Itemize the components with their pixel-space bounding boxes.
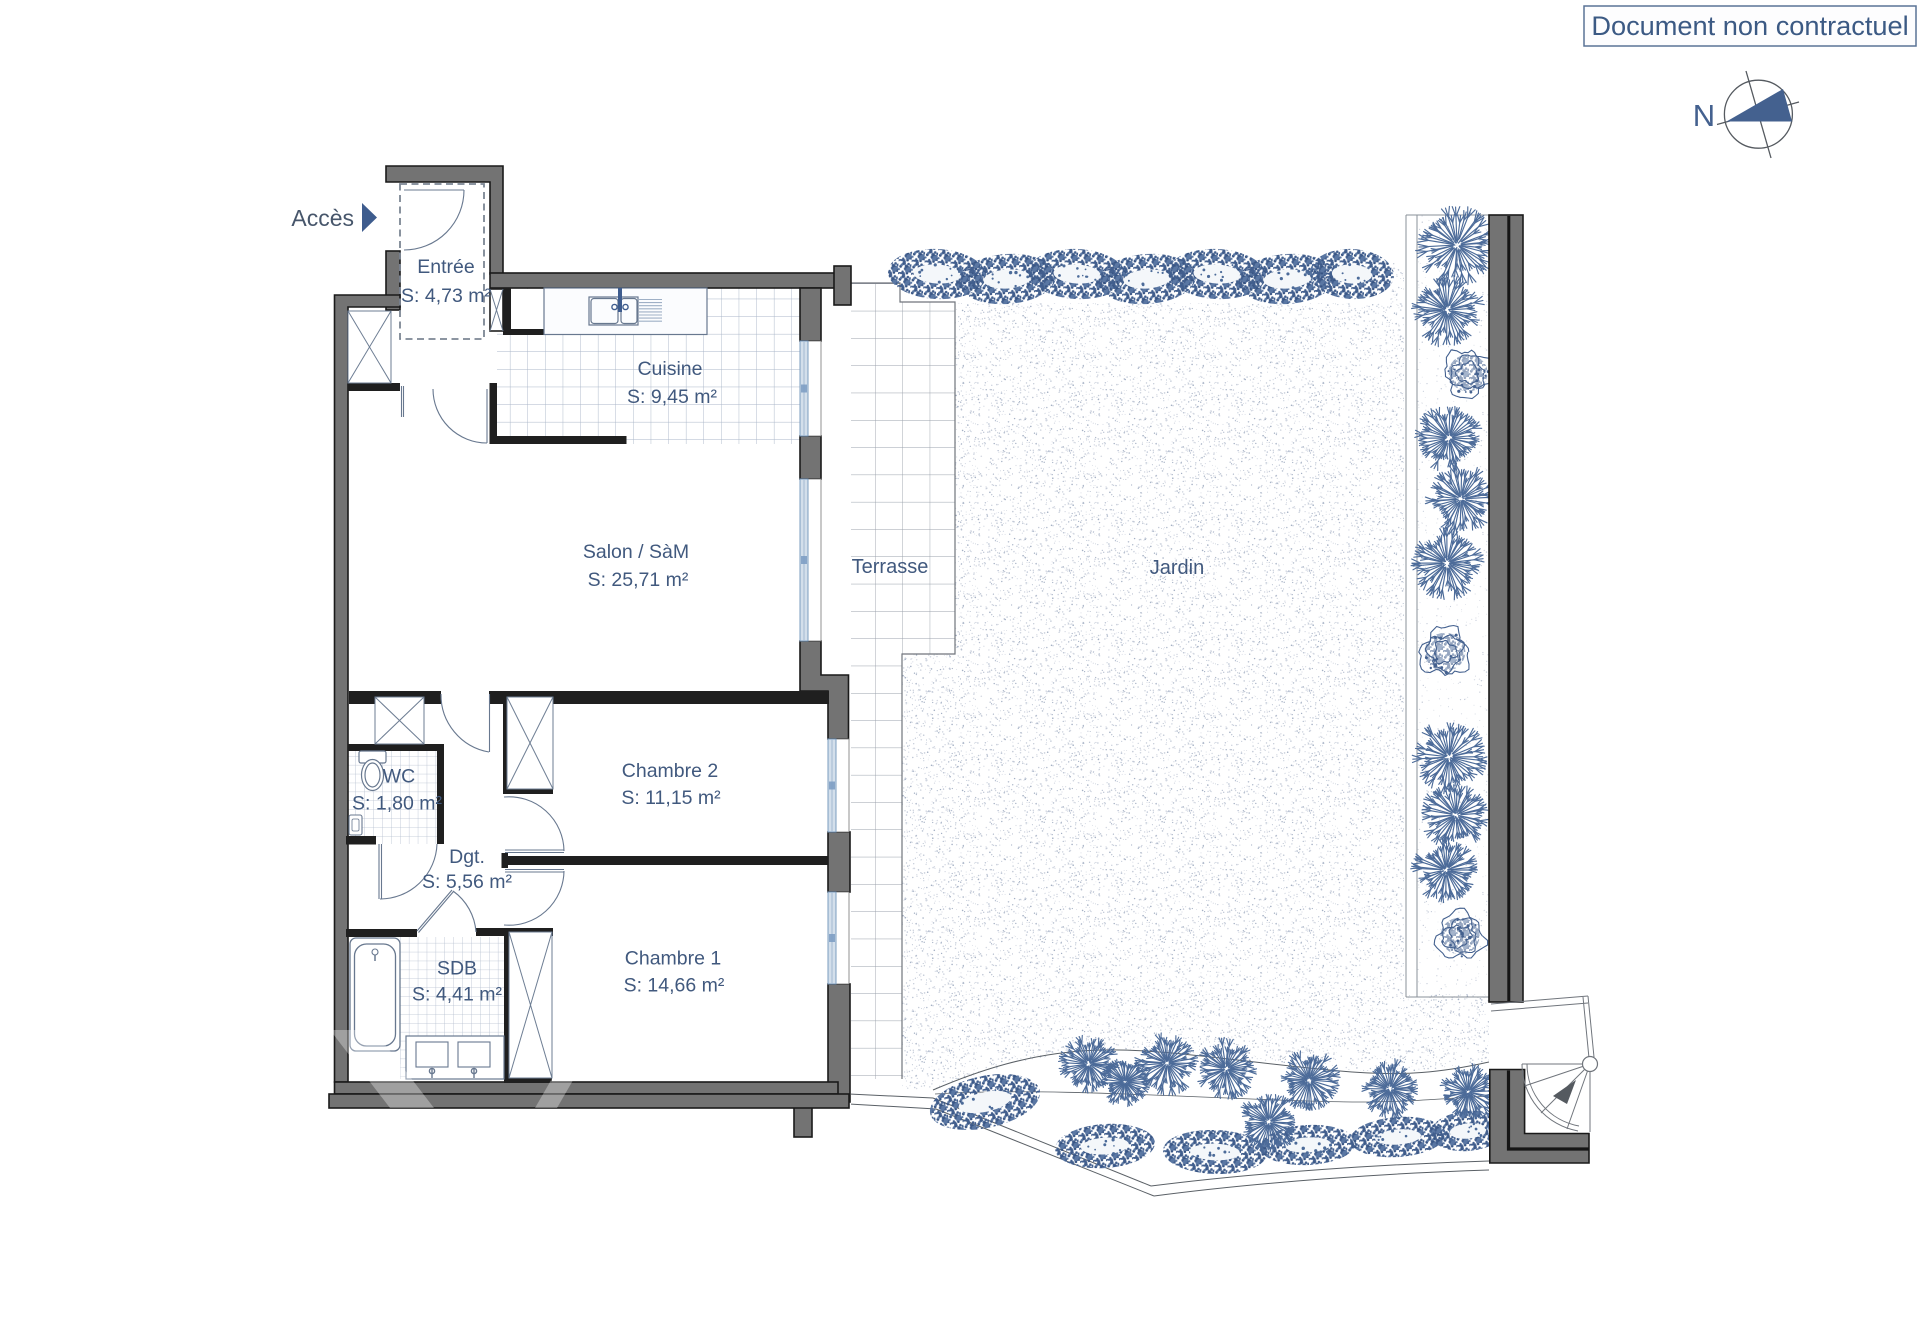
svg-text:SDB: SDB (437, 958, 477, 980)
svg-text:S: 5,56 m²: S: 5,56 m² (422, 871, 512, 893)
svg-text:Chambre 1: Chambre 1 (625, 948, 721, 970)
svg-text:S: 25,71 m²: S: 25,71 m² (588, 569, 689, 591)
svg-text:Jardin: Jardin (1150, 557, 1204, 579)
svg-text:N: N (1693, 98, 1715, 133)
svg-text:Salon / SàM: Salon / SàM (583, 541, 689, 563)
svg-text:WC: WC (383, 766, 416, 788)
svg-text:S: 4,41 m²: S: 4,41 m² (412, 984, 502, 1006)
svg-text:S: 4,73 m²: S: 4,73 m² (401, 285, 491, 307)
svg-text:Terrasse: Terrasse (852, 556, 929, 578)
svg-text:Entrée: Entrée (417, 256, 474, 278)
svg-text:S: 1,80 m²: S: 1,80 m² (352, 793, 442, 815)
svg-text:S: 9,45 m²: S: 9,45 m² (627, 386, 717, 408)
svg-text:Chambre 2: Chambre 2 (622, 760, 718, 782)
svg-text:Dgt.: Dgt. (449, 846, 485, 868)
svg-text:S: 14,66 m²: S: 14,66 m² (624, 975, 725, 997)
svg-text:Document non contractuel: Document non contractuel (1591, 10, 1908, 41)
svg-text:Cuisine: Cuisine (637, 358, 702, 380)
svg-text:Accès: Accès (291, 205, 354, 231)
svg-text:S: 11,15 m²: S: 11,15 m² (621, 787, 721, 809)
